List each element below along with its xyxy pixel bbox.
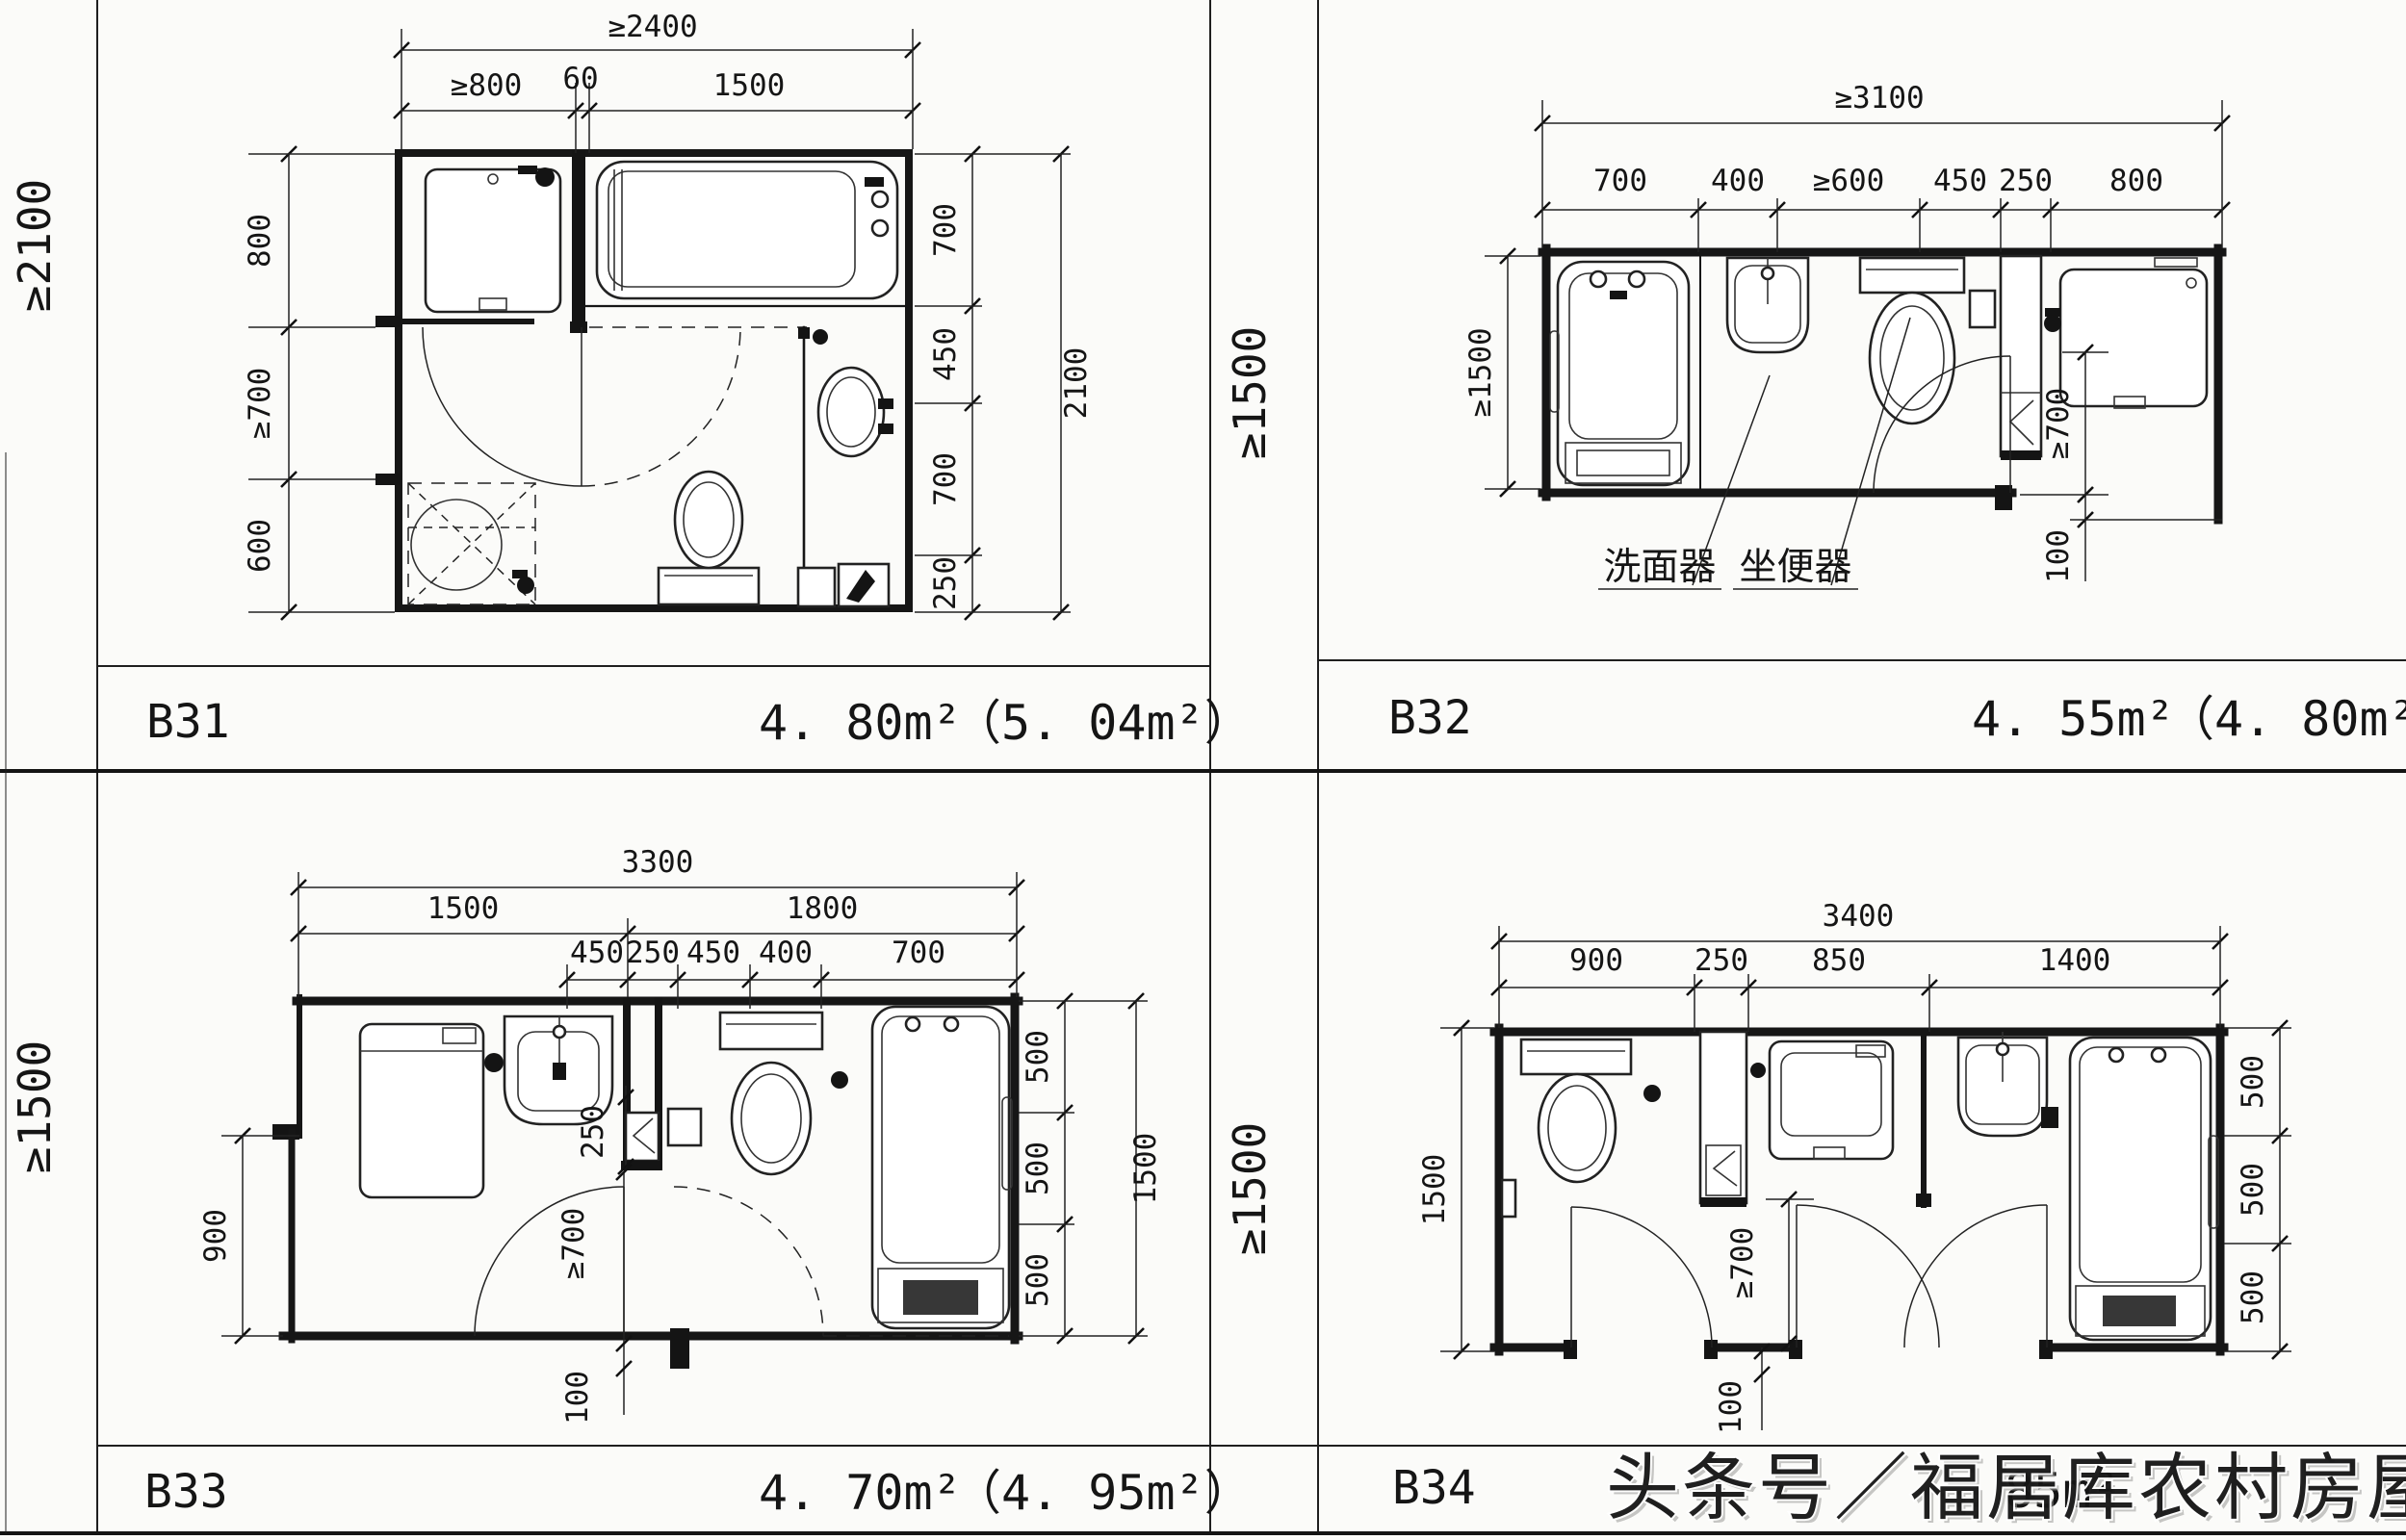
dim-label: 700 (1593, 164, 1647, 198)
plan-code: B33 (144, 1465, 228, 1519)
watermark: 头条号／福居库农村房屋设计 头条号／福居库农村房屋设计 (1606, 1448, 2406, 1533)
b33-washing-machine-icon (360, 1024, 504, 1197)
dim-label: ≥1500 (1463, 327, 1498, 417)
dim-label: 1400 (2039, 943, 2111, 978)
b33-dim-left: 900 (198, 1128, 299, 1344)
dim-label: 1500 (1417, 1154, 1452, 1226)
dim-label: 1500 (713, 68, 786, 103)
plan-area-alt: （5. 04m²） (953, 695, 1253, 751)
plan-b34: 3400 900 250 850 1400 1500 500 500 500 ≥… (1417, 899, 2291, 1434)
dim-label: 500 (1021, 1030, 1055, 1084)
b32-dim-left: ≥1500 (1463, 248, 1540, 497)
dim-label: 3400 (1823, 899, 1895, 934)
b31-toilet-icon (659, 472, 759, 604)
dim-label: ≥600 (1813, 164, 1885, 198)
b33-dim-inner: 250 ≥700 100 (556, 1086, 634, 1424)
b34-bathtub-icon (2070, 1038, 2218, 1340)
dim-label: 900 (1569, 943, 1623, 978)
dim-label: 250 (1999, 164, 2053, 198)
watermark-text: 头条号／福居库农村房屋设计 (1606, 1448, 2406, 1529)
dim-label: 60 (562, 62, 598, 96)
plan-area: 4. 55m² (1972, 691, 2175, 747)
dim-label: 1800 (787, 891, 859, 926)
dim-label: 800 (2109, 164, 2163, 198)
b34-shower-tray-icon (1750, 1041, 1893, 1159)
b34-dim-right: 500 500 500 (2224, 1020, 2291, 1359)
dim-label: ≥800 (451, 68, 523, 103)
washbasin-callout-label: 洗面器 (1603, 547, 1716, 588)
row1-right-min-dim: ≥1500 (1224, 326, 1276, 459)
b31-washbasin-icon (813, 329, 893, 456)
b32-duct-partition (1970, 256, 2041, 460)
dim-label: 600 (243, 519, 277, 573)
b34-dim-inner: ≥700 100 (1714, 1192, 1814, 1434)
dim-label: 500 (1021, 1142, 1055, 1195)
dim-label: ≥700 (2041, 388, 2076, 460)
dim-label: 700 (928, 203, 963, 257)
dim-label: 400 (759, 936, 813, 970)
dim-label: 450 (1933, 164, 1987, 198)
row1-left-min-dim: ≥2100 (9, 179, 61, 312)
dim-label: 500 (2236, 1270, 2270, 1324)
dim-label: 450 (928, 327, 963, 381)
table-grid (0, 0, 2406, 1533)
b34-dim-top: 3400 900 250 850 1400 (1491, 899, 2228, 1032)
b31-door-swing-arc (423, 327, 740, 486)
row2-left-min-dim: ≥1500 (9, 1040, 61, 1173)
dim-label: 850 (1812, 943, 1866, 978)
dim-label: ≥700 (1725, 1227, 1760, 1299)
dim-label: 700 (928, 452, 963, 506)
dim-label: 800 (243, 214, 277, 268)
dim-label: 250 (1695, 943, 1748, 978)
b34-washbasin-icon (1958, 1032, 2058, 1136)
plan-area: 4. 70m² (759, 1465, 962, 1521)
caption-b33: B33 4. 70m² （4. 95m²） (144, 1465, 1253, 1521)
b34-toilet-icon (1502, 1039, 1661, 1217)
dim-label: 100 (560, 1371, 595, 1424)
dim-label: 400 (1711, 164, 1765, 198)
dim-label: 500 (2236, 1163, 2270, 1217)
b31-dim-top: ≥2400 ≥800 60 1500 (394, 10, 920, 153)
dim-label: ≥3100 (1834, 81, 1924, 115)
dim-label: ≥700 (556, 1208, 591, 1280)
b31-bathtub-icon (597, 162, 897, 298)
b32-washbasin-icon (1727, 258, 1808, 352)
dim-label: 450 (686, 936, 740, 970)
dim-label: ≥700 (243, 368, 277, 440)
dim-label: 500 (2236, 1055, 2270, 1109)
b33-duct-partition (621, 997, 701, 1170)
dim-label: 2100 (1059, 347, 1094, 420)
plan-b32: 洗面器 坐便器 ≥3100 700 400 ≥600 450 250 800 ≥… (1463, 81, 2230, 589)
dim-label: 1500 (1128, 1133, 1163, 1205)
dim-label: 250 (928, 556, 963, 610)
b32-shower-stall-icon (2044, 258, 2207, 408)
plan-code: B34 (1392, 1461, 1476, 1515)
dim-label: 450 (570, 936, 624, 970)
dim-label: 3300 (622, 845, 694, 880)
toilet-callout-label: 坐便器 (1739, 547, 1851, 588)
b32-dim-top: ≥3100 700 400 ≥600 450 250 800 (1535, 81, 2230, 252)
row2-right-min-dim: ≥1500 (1224, 1122, 1276, 1255)
plan-b31: ≥2400 ≥800 60 1500 800 ≥700 600 700 450 … (243, 10, 1094, 620)
caption-b32: B32 4. 55m² （4. 80m²） (1388, 691, 2406, 747)
b31-shower-stall-icon (426, 166, 560, 312)
plan-b33: 3300 1500 1800 450 250 450 400 700 900 (198, 845, 1163, 1424)
dim-label: 700 (892, 936, 945, 970)
dim-label: 100 (1714, 1380, 1748, 1434)
b34-duct-partition (1700, 1032, 1746, 1207)
b33-toilet-icon (720, 1013, 848, 1174)
dim-label: 100 (2041, 529, 2076, 583)
plan-area-alt: （4. 80m²） (2166, 691, 2406, 747)
b33-dim-right: 500 500 500 1500 (1019, 993, 1163, 1344)
plan-area: 4. 80m² (759, 695, 962, 751)
plan-code: B32 (1388, 691, 1472, 745)
b31-dim-left: 800 ≥700 600 (243, 146, 395, 620)
b31-floor-drain-icon (798, 564, 889, 606)
b33-bathtub-icon (872, 1007, 1012, 1328)
plan-area-alt: （4. 95m²） (953, 1465, 1253, 1521)
dim-label: 250 (576, 1105, 610, 1159)
b31-dim-right: 700 450 700 250 2100 (915, 146, 1094, 620)
b31-washing-machine-icon (408, 483, 535, 604)
dim-label: 250 (626, 936, 680, 970)
dim-label: 500 (1021, 1253, 1055, 1307)
dim-label: ≥2400 (608, 10, 697, 44)
b34-dim-left: 1500 (1417, 1020, 1494, 1359)
b33-dim-top: 3300 1500 1800 450 250 450 400 700 (291, 845, 1024, 1009)
b34-door-swing-arcs (1571, 1205, 2047, 1347)
dim-label: 900 (198, 1209, 233, 1263)
scanned-floor-plan-sheet: ≥2100 ≥1500 ≥1500 ≥1500 (0, 0, 2406, 1540)
plan-code: B31 (146, 695, 230, 749)
caption-b31: B31 4. 80m² （5. 04m²） (146, 695, 1253, 751)
b32-bathtub-icon (1550, 262, 1689, 485)
dim-label: 1500 (427, 891, 500, 926)
